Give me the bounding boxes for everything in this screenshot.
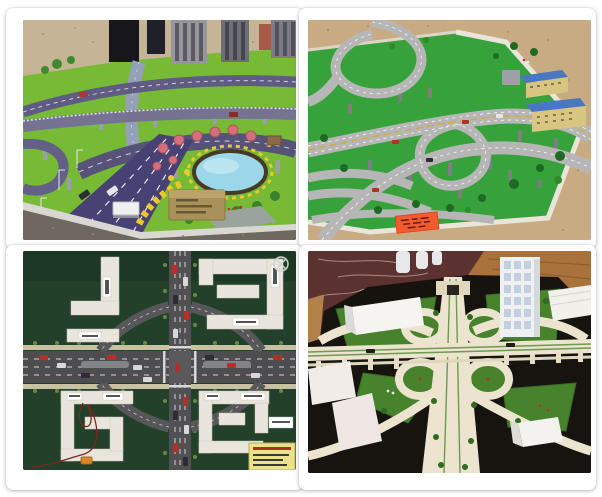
toy-car-darkred	[229, 112, 238, 117]
gazebo	[267, 136, 281, 145]
building-shed	[548, 285, 591, 321]
photo-frame-bottom-right[interactable]	[299, 245, 596, 490]
photo-frame-top-right[interactable]	[299, 8, 596, 249]
card-title-mark	[253, 447, 291, 450]
building-window-tower	[500, 257, 540, 337]
photo-highway-interchange-model	[308, 20, 591, 240]
photo-city-expressway-model	[23, 20, 296, 240]
toy-car-dark	[366, 349, 375, 353]
orange-component	[81, 457, 92, 464]
photo-frame-top-left[interactable]	[6, 8, 303, 249]
photo-cloverleaf-paper-model	[308, 251, 591, 473]
photo-crossroads-felt-model	[23, 251, 296, 470]
brass-plaque	[169, 190, 225, 220]
toy-car-dark-2	[506, 343, 515, 347]
photo-frame-bottom-left[interactable]	[6, 245, 303, 490]
photo-collage	[0, 0, 602, 497]
model-skyscrapers	[171, 20, 296, 64]
bus-shelter	[113, 202, 139, 218]
yellow-spec-card	[249, 443, 295, 470]
